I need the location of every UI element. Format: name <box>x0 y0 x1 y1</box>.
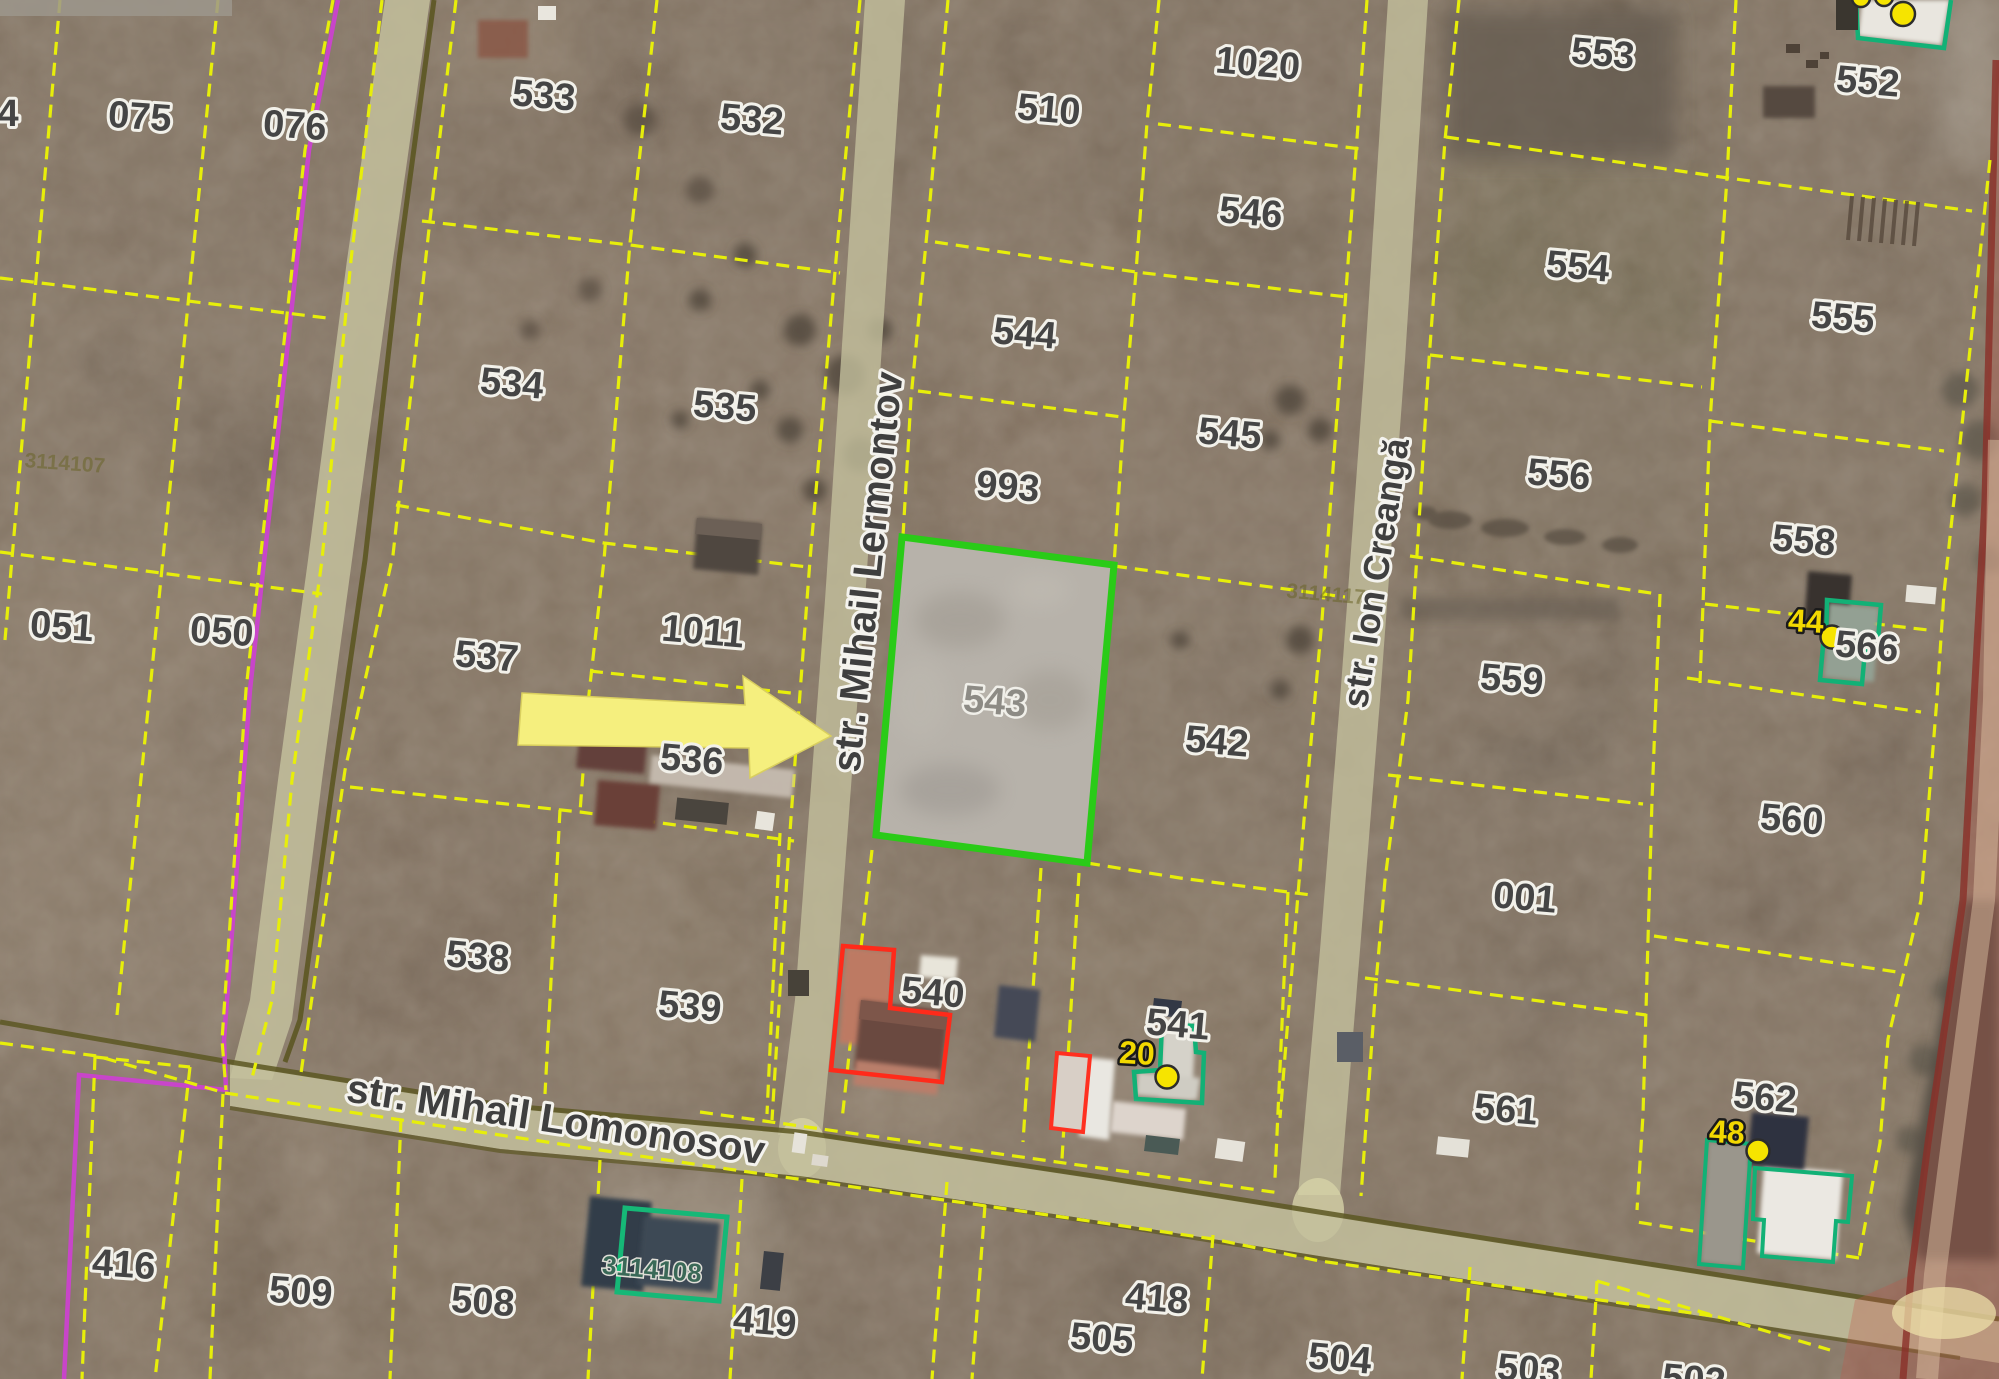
svg-text:535: 535 <box>691 383 758 430</box>
svg-text:553: 553 <box>1569 30 1636 77</box>
svg-text:419: 419 <box>731 1298 798 1345</box>
svg-text:076: 076 <box>262 103 328 149</box>
svg-text:537: 537 <box>453 633 520 680</box>
svg-text:510: 510 <box>1015 86 1082 133</box>
svg-text:560: 560 <box>1758 796 1825 843</box>
svg-text:542: 542 <box>1183 718 1250 765</box>
svg-text:536: 536 <box>658 736 725 783</box>
svg-text:561: 561 <box>1472 1086 1539 1133</box>
svg-text:539: 539 <box>656 983 723 1030</box>
svg-text:538: 538 <box>444 933 511 980</box>
svg-text:504: 504 <box>1306 1335 1373 1379</box>
svg-text:001: 001 <box>1491 874 1558 921</box>
svg-text:552: 552 <box>1834 58 1901 105</box>
svg-text:559: 559 <box>1478 656 1545 703</box>
svg-text:4: 4 <box>0 93 19 135</box>
svg-text:545: 545 <box>1196 410 1263 457</box>
svg-text:533: 533 <box>510 72 577 119</box>
svg-text:555: 555 <box>1809 294 1876 341</box>
svg-text:20: 20 <box>1118 1034 1155 1072</box>
svg-text:532: 532 <box>718 96 785 143</box>
svg-text:546: 546 <box>1217 189 1284 236</box>
svg-text:1020: 1020 <box>1214 39 1302 88</box>
svg-text:543: 543 <box>961 678 1028 725</box>
svg-text:051: 051 <box>29 604 95 650</box>
svg-text:993: 993 <box>974 463 1041 510</box>
svg-text:418: 418 <box>1123 1275 1190 1322</box>
svg-text:416: 416 <box>91 1242 157 1288</box>
svg-text:544: 544 <box>991 310 1058 357</box>
svg-text:556: 556 <box>1525 451 1592 498</box>
svg-text:44: 44 <box>1787 602 1825 640</box>
svg-text:075: 075 <box>107 94 173 140</box>
svg-text:505: 505 <box>1068 1315 1135 1362</box>
svg-text:1011: 1011 <box>660 607 746 656</box>
svg-text:534: 534 <box>478 360 545 407</box>
svg-text:540: 540 <box>899 969 966 1016</box>
svg-text:508: 508 <box>450 1279 516 1325</box>
svg-text:566: 566 <box>1833 623 1900 670</box>
svg-text:554: 554 <box>1544 243 1611 290</box>
svg-text:558: 558 <box>1770 517 1837 564</box>
svg-text:509: 509 <box>268 1269 334 1315</box>
svg-text:050: 050 <box>189 609 255 655</box>
svg-text:48: 48 <box>1708 1113 1745 1151</box>
svg-text:503: 503 <box>1495 1346 1562 1379</box>
